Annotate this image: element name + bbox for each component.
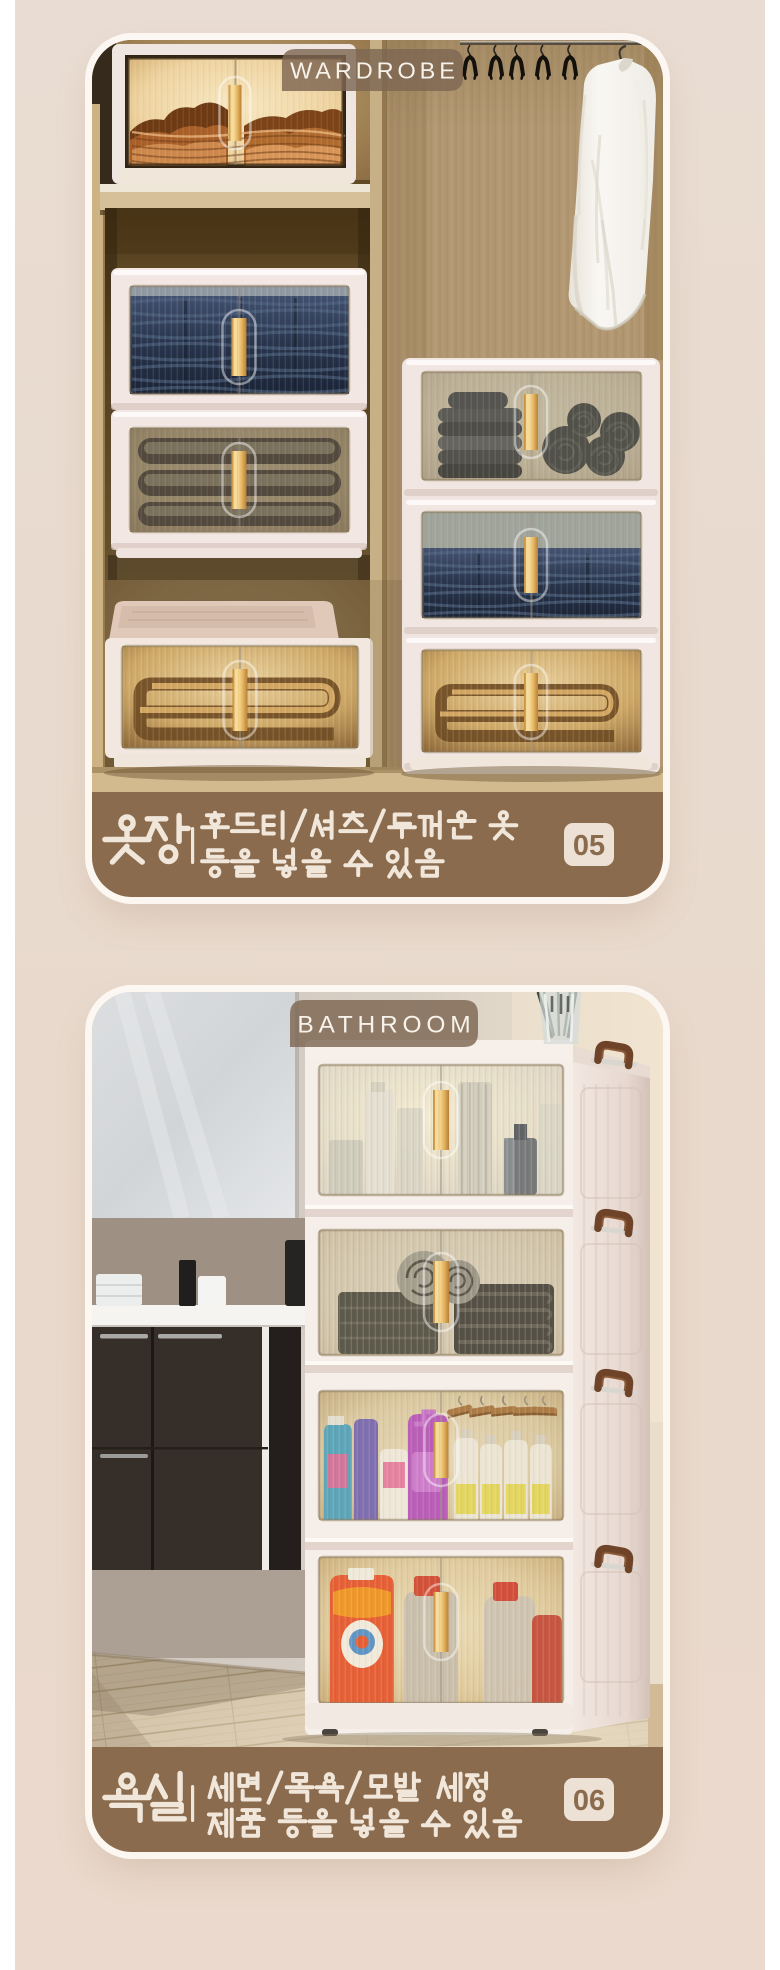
svg-text:06: 06 <box>573 1785 605 1817</box>
svg-text:WARDROBE: WARDROBE <box>290 57 459 83</box>
svg-text:BATHROOM: BATHROOM <box>297 1011 475 1038</box>
svg-text:05: 05 <box>573 830 605 862</box>
